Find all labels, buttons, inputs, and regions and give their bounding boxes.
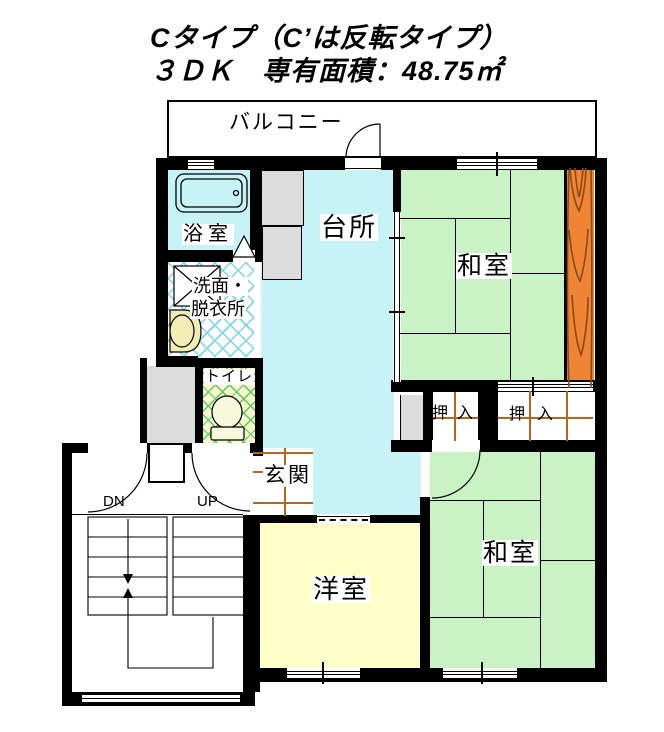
- wall: [156, 250, 233, 262]
- stairs-up-arrow: [123, 588, 133, 598]
- fusuma-tick: [389, 237, 405, 239]
- tatami-line: [540, 560, 595, 561]
- balcony-label: バルコニー: [228, 112, 345, 134]
- wall: [62, 443, 72, 705]
- door-line: [498, 387, 593, 388]
- landing-edge-line: [72, 514, 243, 515]
- washroom-label-line1: 洗面・: [192, 277, 248, 296]
- bathroom-label: 浴室: [182, 224, 234, 245]
- wall: [156, 158, 607, 170]
- window-tick: [496, 152, 498, 176]
- closet-right-label: 押入: [508, 407, 566, 424]
- genkan-label: 玄関: [263, 465, 313, 487]
- fusuma-tick: [389, 311, 405, 313]
- closet-left-label: 押入: [431, 406, 483, 423]
- tatami-line: [510, 273, 566, 274]
- entrance-partition-stub: [148, 443, 185, 483]
- wall: [243, 515, 260, 692]
- window-tick: [481, 662, 483, 684]
- wood-floor-strip: [567, 166, 594, 390]
- door-dash-line: [319, 519, 368, 521]
- floor-plan: Cタイプ（C’は反転タイプ） ３ＤＫ 専有面積：48.75㎡: [0, 0, 664, 732]
- wall: [156, 158, 168, 366]
- staircase: [88, 517, 245, 668]
- duct-space: [400, 395, 424, 445]
- wall: [195, 358, 203, 452]
- tatami-lower-label: 和室: [482, 540, 538, 566]
- wall: [595, 158, 607, 682]
- genkan-grid-line: [253, 502, 313, 504]
- kitchen-counter: [261, 170, 304, 226]
- wall: [156, 356, 198, 367]
- western-room-label: 洋室: [312, 576, 370, 603]
- kitchen-counter: [262, 226, 302, 280]
- kitchen-label: 台所: [320, 214, 378, 241]
- tatami-line: [430, 500, 540, 501]
- stairs-down-label: DN: [102, 494, 126, 510]
- tatami-line: [540, 448, 541, 668]
- door-line: [498, 384, 593, 385]
- stairs-down-arrow: [123, 574, 133, 584]
- wall: [255, 366, 263, 452]
- wall: [391, 440, 607, 452]
- wall: [420, 497, 430, 668]
- window-tick: [322, 662, 324, 684]
- pipe-space: [147, 366, 195, 444]
- genkan-grid-line: [253, 452, 313, 454]
- hall-area: [313, 448, 421, 516]
- entrance-door-gap-right: [192, 443, 250, 453]
- window-line: [443, 671, 517, 672]
- toilet-label: トイレ: [204, 369, 254, 385]
- wall: [140, 358, 147, 453]
- washroom-label-line2: 脱衣所: [190, 300, 246, 319]
- door-line: [317, 516, 370, 517]
- window-line: [443, 674, 517, 675]
- closet-grid-line: [566, 391, 568, 441]
- plan-title: Cタイプ（C’は反転タイプ） ３ＤＫ 専有面積：48.75㎡: [150, 22, 508, 88]
- plan-title-line1: Cタイプ（C’は反転タイプ）: [150, 22, 508, 55]
- tatami-line: [430, 617, 540, 618]
- plan-title-line2: ３ＤＫ 専有面積：48.75㎡: [150, 55, 508, 88]
- entrance-door-gap-left: [88, 443, 147, 453]
- window-line: [188, 162, 214, 163]
- tatami-upper-label: 和室: [456, 253, 512, 279]
- bathroom-door-gap: [233, 250, 255, 262]
- window-line: [82, 698, 240, 699]
- tatami-line: [400, 333, 510, 334]
- wall: [195, 358, 263, 368]
- wall: [393, 170, 401, 212]
- sill-line: [345, 168, 381, 169]
- tatami-lower-window: [443, 668, 517, 678]
- tatami-lower-doorway: [432, 440, 480, 452]
- window-line: [188, 165, 214, 166]
- stairs-up-label: UP: [196, 494, 219, 510]
- door-tick: [532, 377, 534, 396]
